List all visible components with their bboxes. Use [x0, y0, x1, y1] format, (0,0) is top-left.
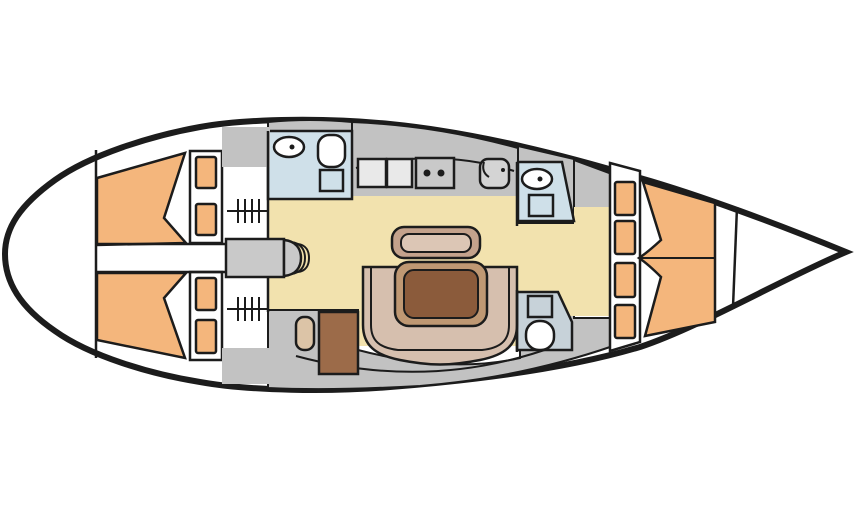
shower-tray: [320, 170, 343, 191]
saloon-table-top: [404, 270, 478, 318]
galley: [358, 158, 509, 188]
shower-tray: [528, 296, 552, 317]
burner-left: [424, 170, 431, 177]
shelf-locker: [615, 221, 635, 254]
worktop-hatch-left: [358, 159, 386, 187]
washbasin-drain: [538, 177, 543, 182]
pillow: [196, 204, 216, 235]
pillow: [196, 278, 216, 310]
stove-icon: [416, 158, 454, 188]
straight-settee-cushion: [401, 234, 471, 252]
shelf-locker: [615, 263, 635, 297]
washbasin-icon: [522, 169, 552, 189]
burner-right: [438, 170, 445, 177]
companionway-steps: [226, 239, 284, 277]
sink-drain: [501, 168, 505, 172]
pillow: [196, 320, 216, 353]
shelf-locker: [615, 305, 635, 338]
shelf-locker: [615, 182, 635, 215]
pillow: [196, 157, 216, 188]
washbasin-drain: [290, 145, 295, 150]
worktop-hatch-right: [387, 159, 412, 187]
companionway: [226, 239, 309, 277]
washbasin-icon: [274, 137, 304, 157]
nav-seat: [296, 317, 314, 350]
shower-tray: [529, 195, 553, 216]
toilet-icon: [526, 321, 554, 350]
stowage-locker: [222, 348, 270, 384]
yacht-floor-plan: [0, 0, 860, 516]
stowage-locker: [222, 127, 270, 167]
floor-plan-canvas: [0, 0, 860, 516]
toilet-icon: [318, 135, 345, 167]
chart-table: [319, 312, 358, 374]
aft-head: [268, 131, 352, 199]
